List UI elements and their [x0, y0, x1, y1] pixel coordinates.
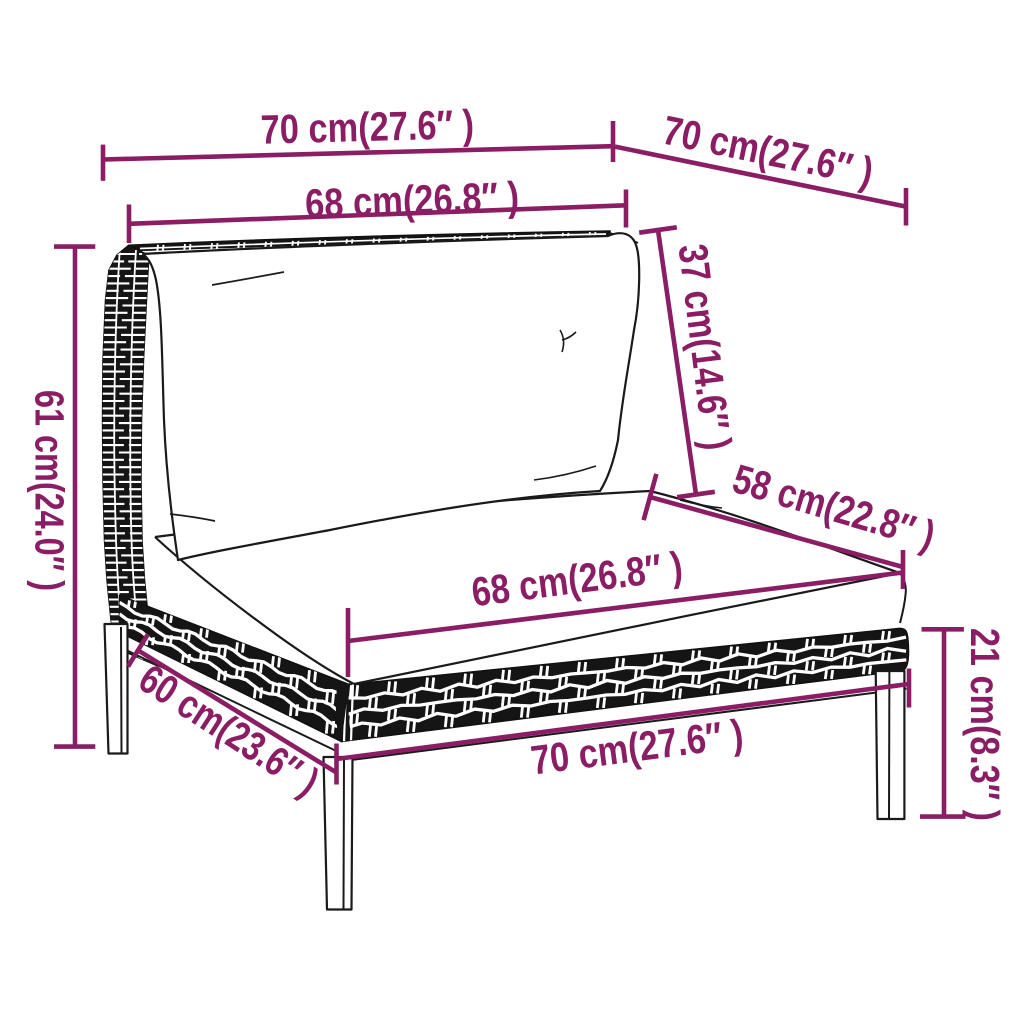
svg-text:68 cm(26.8″ ): 68 cm(26.8″ ) [304, 173, 520, 227]
svg-text:21 cm(8.3″ ): 21 cm(8.3″ ) [962, 628, 1008, 821]
svg-text:61 cm(24.0″ ): 61 cm(24.0″ ) [27, 390, 73, 591]
svg-text:70 cm(27.6″ ): 70 cm(27.6″ ) [260, 101, 475, 153]
